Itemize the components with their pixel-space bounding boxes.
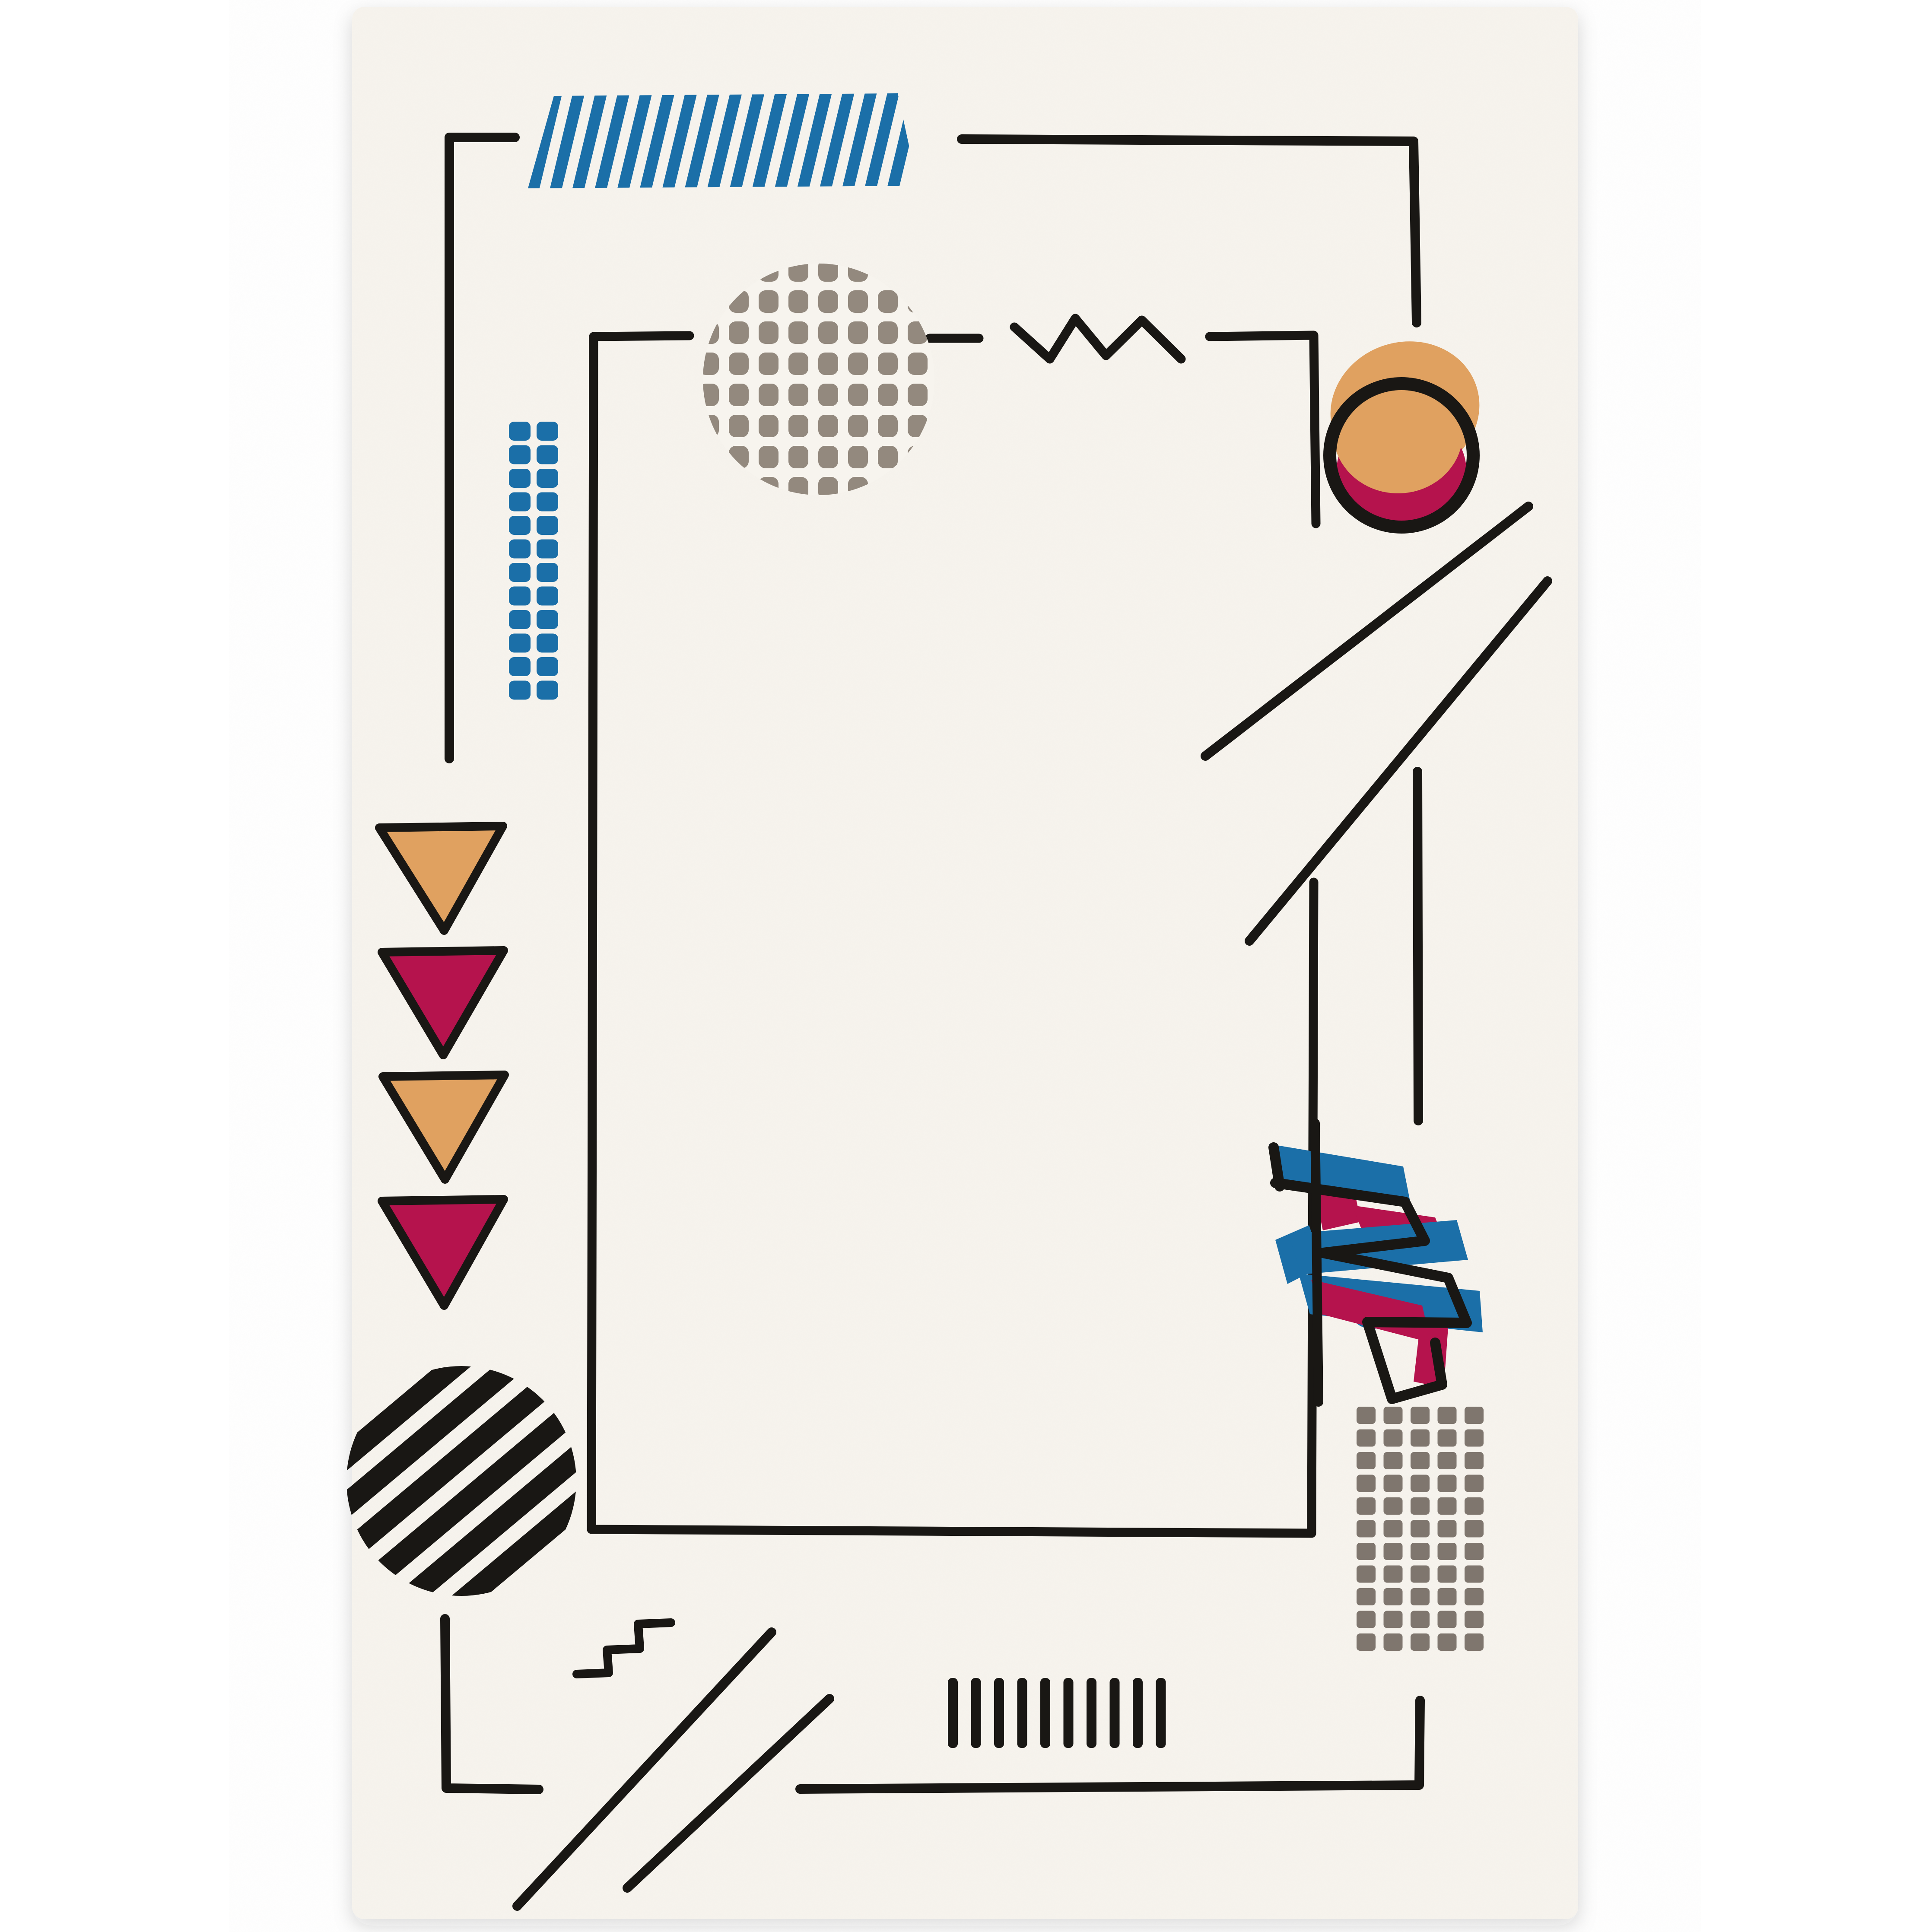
taupe-dot: [729, 321, 749, 344]
gray-square: [1465, 1430, 1484, 1447]
gray-square: [1438, 1588, 1457, 1605]
taupe-dot: [878, 415, 898, 437]
gray-square: [1357, 1452, 1376, 1469]
taupe-dot: [788, 415, 808, 437]
gray-square: [1465, 1475, 1484, 1492]
rug: [352, 7, 1578, 1919]
rug-wool-texture: [352, 7, 1578, 1919]
blue-square: [537, 681, 558, 700]
gray-square: [1357, 1543, 1376, 1560]
taupe-dot: [818, 290, 838, 313]
gray-square: [1438, 1452, 1457, 1469]
barcode-bar: [1133, 1678, 1143, 1748]
gray-square: [1465, 1611, 1484, 1628]
barcode-bar: [971, 1678, 981, 1748]
taupe-dot: [818, 353, 838, 375]
barcode-bar: [1156, 1678, 1166, 1748]
gray-square: [1438, 1566, 1457, 1583]
gray-square: [1384, 1520, 1403, 1538]
blue-square: [509, 493, 531, 512]
gray-square: [1411, 1430, 1430, 1447]
gray-square: [1411, 1633, 1430, 1651]
barcode-bar: [1064, 1678, 1074, 1748]
taupe-dot: [848, 290, 868, 313]
gray-square: [1384, 1475, 1403, 1492]
taupe-dot: [759, 415, 779, 437]
blue-square: [537, 516, 558, 535]
taupe-dot: [729, 415, 749, 437]
gray-square: [1384, 1497, 1403, 1515]
taupe-dot: [908, 353, 928, 375]
taupe-dot: [878, 446, 898, 468]
taupe-dot: [788, 384, 808, 406]
taupe-dot: [878, 384, 898, 406]
taupe-dot: [788, 290, 808, 313]
gray-square: [1411, 1452, 1430, 1469]
rug-product-photo: [0, 0, 1932, 1932]
gray-square: [1357, 1588, 1376, 1605]
taupe-dot: [818, 384, 838, 406]
taupe-dot: [759, 353, 779, 375]
gray-square: [1384, 1407, 1403, 1424]
gray-square: [1465, 1520, 1484, 1538]
taupe-dot: [729, 384, 749, 406]
taupe-dot: [848, 321, 868, 344]
barcode-bar: [948, 1678, 958, 1748]
gray-square: [1357, 1566, 1376, 1583]
blue-square: [509, 469, 531, 488]
taupe-dot: [818, 446, 838, 468]
blue-square: [537, 610, 558, 629]
blue-square: [537, 634, 558, 653]
taupe-dot: [818, 321, 838, 344]
scribble-crossing-line: [1315, 1123, 1319, 1402]
taupe-dot: [729, 353, 749, 375]
taupe-dot: [759, 384, 779, 406]
blue-square: [509, 587, 531, 606]
blue-square: [537, 469, 558, 488]
blue-square: [537, 493, 558, 512]
blue-square: [537, 422, 558, 441]
taupe-dot: [788, 446, 808, 468]
gray-square: [1411, 1566, 1430, 1583]
barcode-bar: [1040, 1678, 1050, 1748]
taupe-dot: [878, 321, 898, 344]
barcode-bar: [1110, 1678, 1120, 1748]
gray-square: [1438, 1407, 1457, 1424]
blue-square: [537, 657, 558, 676]
gray-square: [1384, 1588, 1403, 1605]
gray-square: [1357, 1475, 1376, 1492]
blue-square: [509, 422, 531, 441]
blue-square: [537, 540, 558, 559]
gray-square: [1357, 1611, 1376, 1628]
taupe-dot: [818, 415, 838, 437]
gray-square: [1384, 1452, 1403, 1469]
gray-square: [1465, 1497, 1484, 1515]
blue-square: [509, 540, 531, 559]
gray-square: [1384, 1633, 1403, 1651]
taupe-dot: [908, 384, 928, 406]
gray-square: [1357, 1430, 1376, 1447]
blue-square: [537, 445, 558, 464]
gray-square: [1357, 1520, 1376, 1538]
taupe-dot: [848, 415, 868, 437]
taupe-dot: [878, 353, 898, 375]
gray-square: [1411, 1497, 1430, 1515]
gray-square: [1357, 1633, 1376, 1651]
gray-square: [1411, 1588, 1430, 1605]
taupe-dot: [759, 290, 779, 313]
gray-square: [1465, 1543, 1484, 1560]
gray-square: [1465, 1633, 1484, 1651]
taupe-dot: [759, 446, 779, 468]
gray-square: [1438, 1520, 1457, 1538]
gray-square: [1465, 1588, 1484, 1605]
gray-square: [1384, 1611, 1403, 1628]
taupe-dot: [848, 353, 868, 375]
gray-square: [1357, 1407, 1376, 1424]
taupe-dot: [848, 384, 868, 406]
gray-square: [1411, 1407, 1430, 1424]
gray-square: [1438, 1497, 1457, 1515]
taupe-dot: [848, 446, 868, 468]
taupe-dot: [759, 321, 779, 344]
barcode-bar: [994, 1678, 1004, 1748]
barcode-bar: [1017, 1678, 1027, 1748]
gray-square: [1357, 1497, 1376, 1515]
blue-square: [509, 634, 531, 653]
blue-square: [509, 681, 531, 700]
gray-square: [1411, 1611, 1430, 1628]
gray-square: [1465, 1407, 1484, 1424]
gray-square: [1438, 1430, 1457, 1447]
gray-square: [1411, 1475, 1430, 1492]
gray-square: [1438, 1475, 1457, 1492]
blue-square: [537, 587, 558, 606]
gray-square: [1384, 1543, 1403, 1560]
gray-square: [1384, 1566, 1403, 1583]
gray-square: [1438, 1611, 1457, 1628]
taupe-dot: [788, 321, 808, 344]
blue-square: [509, 657, 531, 676]
blue-square: [509, 516, 531, 535]
gray-square: [1465, 1566, 1484, 1583]
outer-border-right-middle: [1417, 772, 1418, 1121]
blue-square: [537, 563, 558, 582]
gray-square: [1438, 1543, 1457, 1560]
taupe-dot: [788, 353, 808, 375]
gray-square: [1411, 1543, 1430, 1560]
barcode-bar: [1087, 1678, 1096, 1748]
blue-square: [509, 610, 531, 629]
taupe-dot: [878, 290, 898, 313]
blue-square: [509, 563, 531, 582]
gray-square: [1384, 1430, 1403, 1447]
gray-square: [1465, 1452, 1484, 1469]
blue-square: [509, 445, 531, 464]
gray-square: [1438, 1633, 1457, 1651]
gray-square: [1411, 1520, 1430, 1538]
